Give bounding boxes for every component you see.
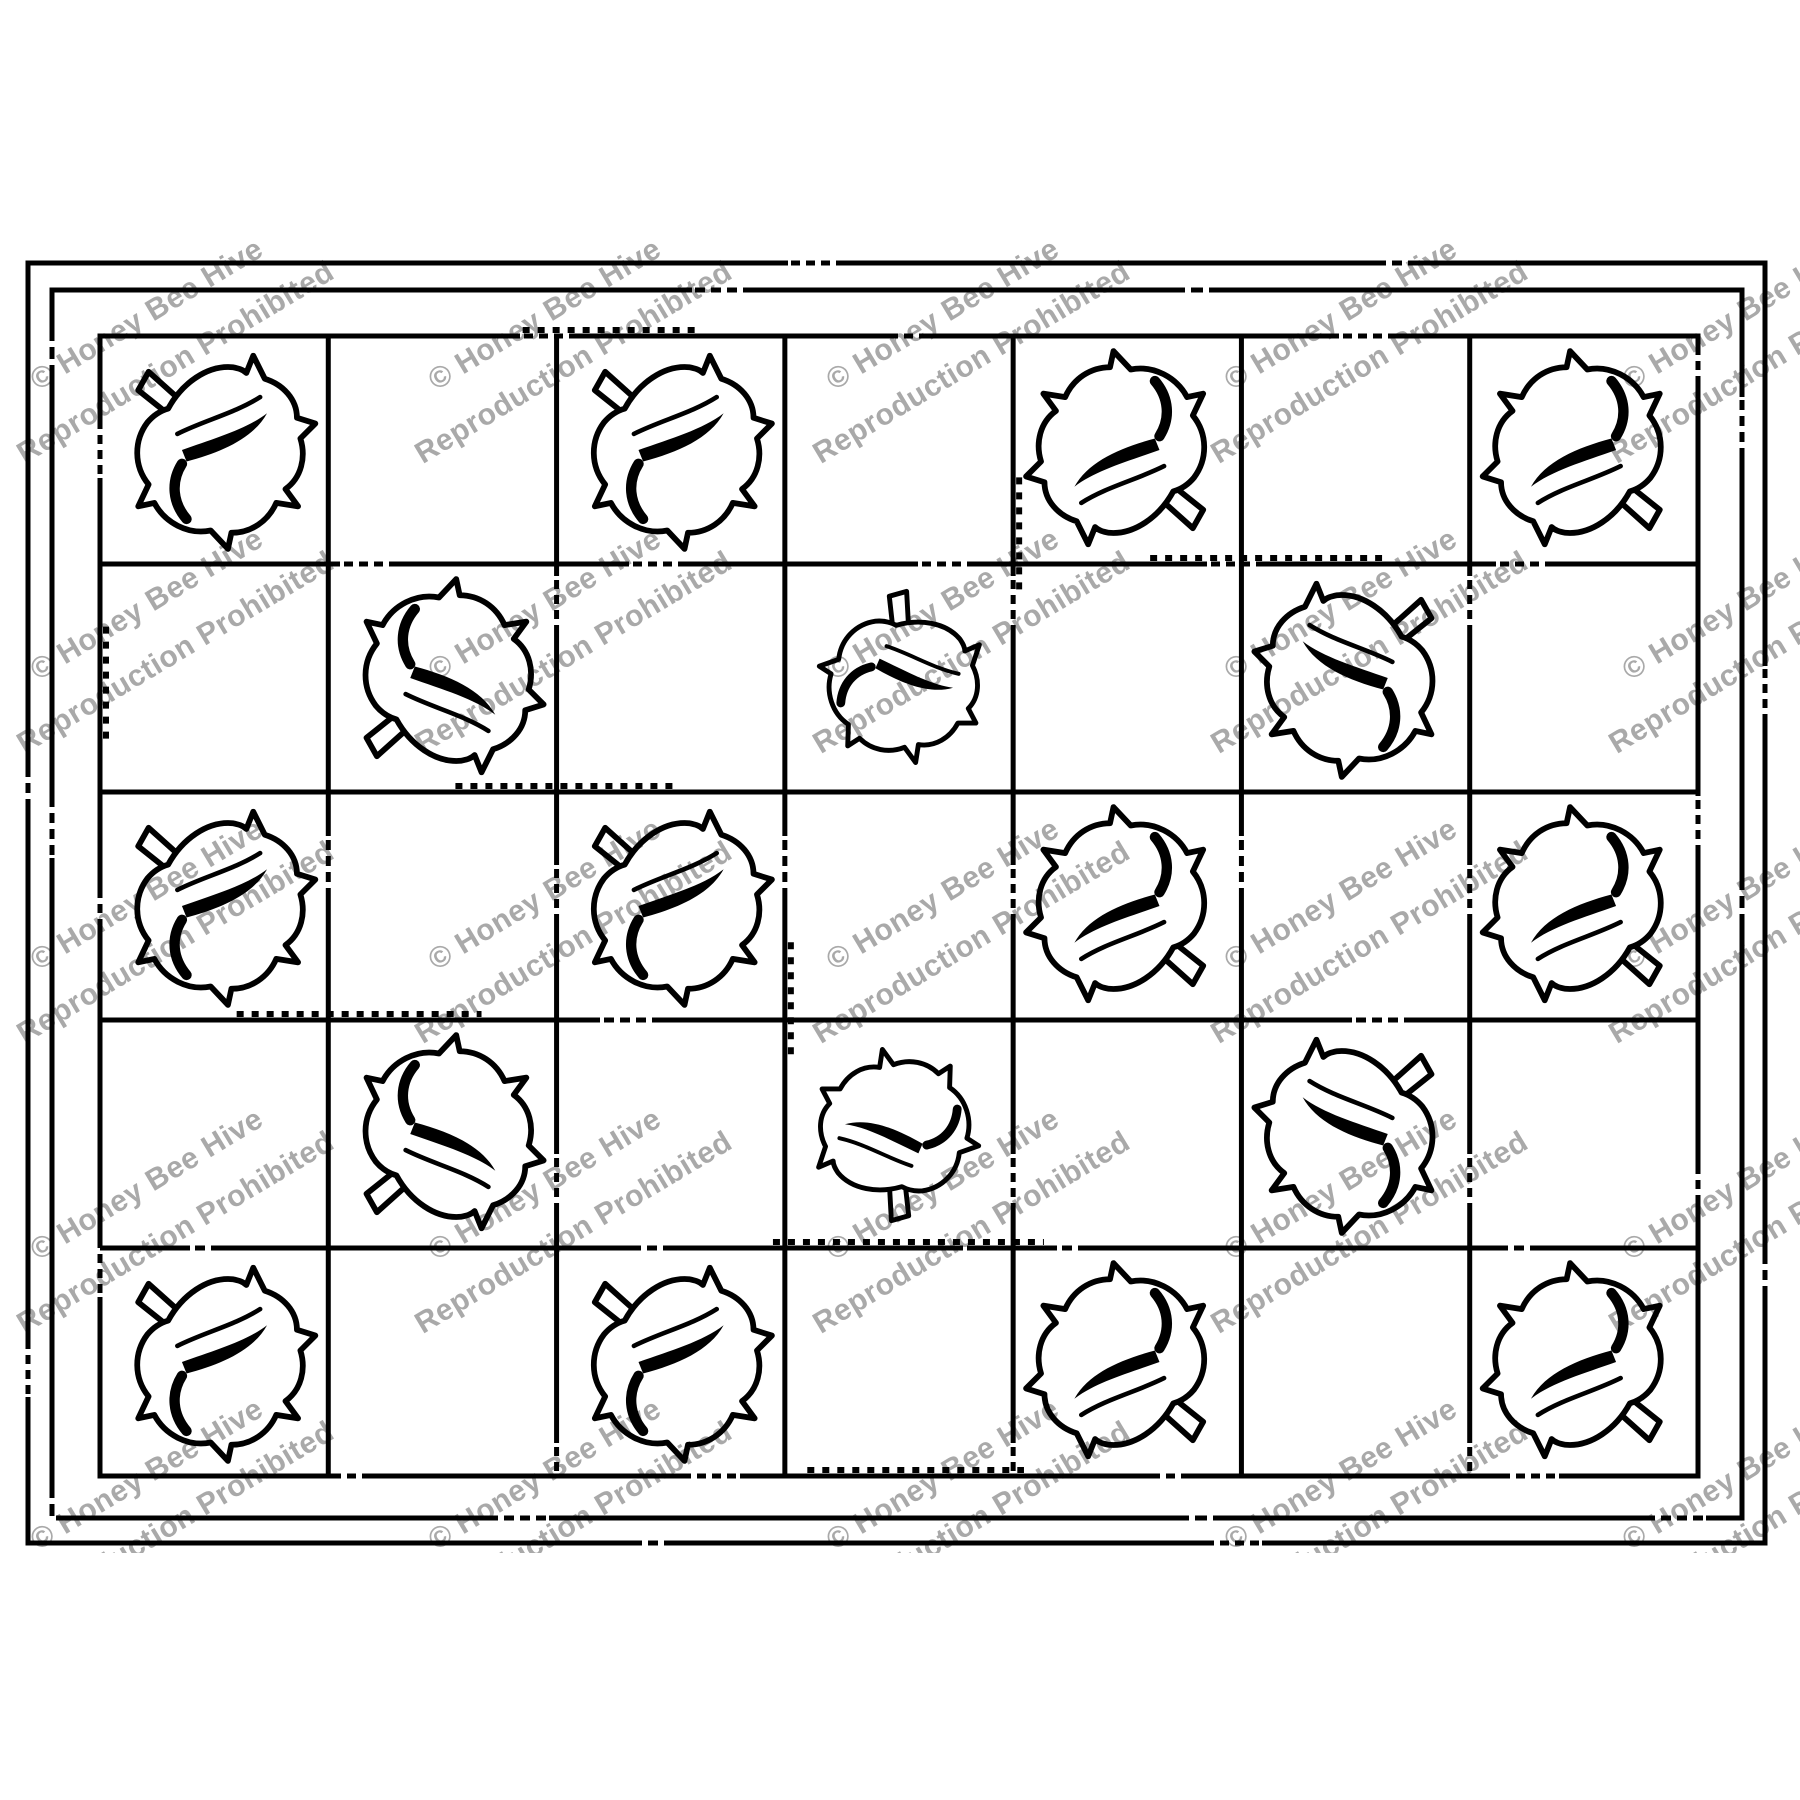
leaf-motif-r0-c4	[1026, 351, 1204, 544]
leaf-motif-r0-c2	[594, 356, 772, 549]
watermark-text: © Honey Bee HiveReproduction Prohibited	[1177, 1367, 1534, 1630]
rug-hooking-pattern-canvas: © Honey Bee HiveReproduction Prohibited©…	[0, 0, 1800, 1800]
watermark-text: © Honey Bee HiveReproduction Prohibited	[1177, 207, 1534, 470]
watermark-text: © Honey Bee HiveReproduction Prohibited	[1177, 787, 1534, 1050]
pattern-sheet: © Honey Bee HiveReproduction Prohibited©…	[0, 0, 1800, 1800]
